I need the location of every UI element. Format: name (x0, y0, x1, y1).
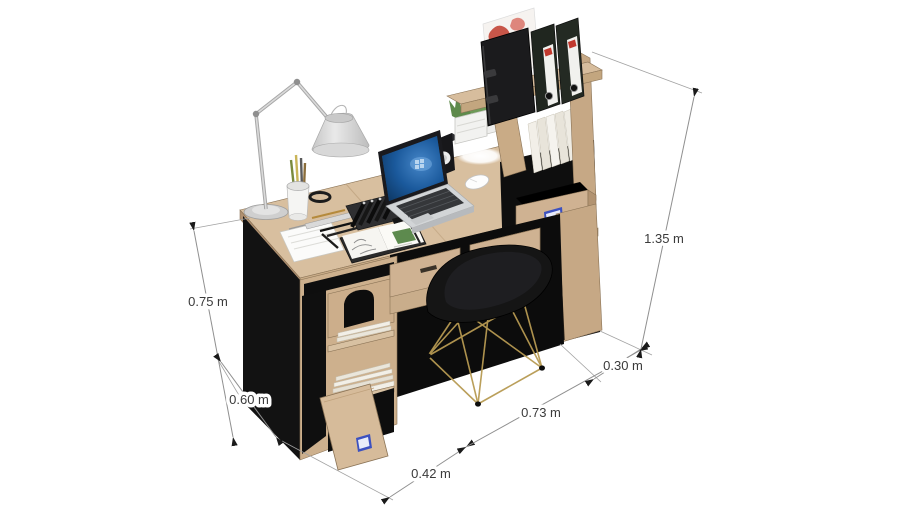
chair-foot (425, 353, 431, 358)
witness-line (592, 52, 702, 93)
windows-logo (415, 160, 419, 164)
dimension-label-desk-front-width: 0.73 m (521, 405, 561, 420)
model-viewport[interactable]: 0.75 m 0.60 m 0.42 m 0.73 m 0.30 m 1.35 … (0, 0, 910, 512)
witness-line (560, 344, 601, 382)
pen-cup (287, 155, 309, 221)
desk-glare-spot (456, 147, 504, 165)
dimension-shelf-depth: 0.30 m (594, 349, 643, 379)
dimension-label-desk-height: 0.75 m (188, 294, 228, 309)
dimension-label-shelf-depth: 0.30 m (603, 358, 643, 373)
model-viewport-stage: 0.75 m 0.60 m 0.42 m 0.73 m 0.30 m 1.35 … (0, 0, 910, 512)
dimension-label-total-height: 1.35 m (644, 231, 684, 246)
dimension-total-height: 1.35 m (641, 97, 694, 349)
dimension-desk-height: 0.75 m (188, 231, 233, 437)
dimension-label-cabinet-width: 0.42 m (411, 466, 451, 481)
dimension-label-cabinet-depth: 0.60 m (229, 392, 269, 407)
witness-line (190, 218, 250, 229)
dimension-cabinet-width: 0.42 m (390, 447, 466, 497)
pedestal-left-bay (302, 290, 326, 454)
chair-foot (539, 365, 545, 370)
chair-foot (475, 401, 481, 406)
